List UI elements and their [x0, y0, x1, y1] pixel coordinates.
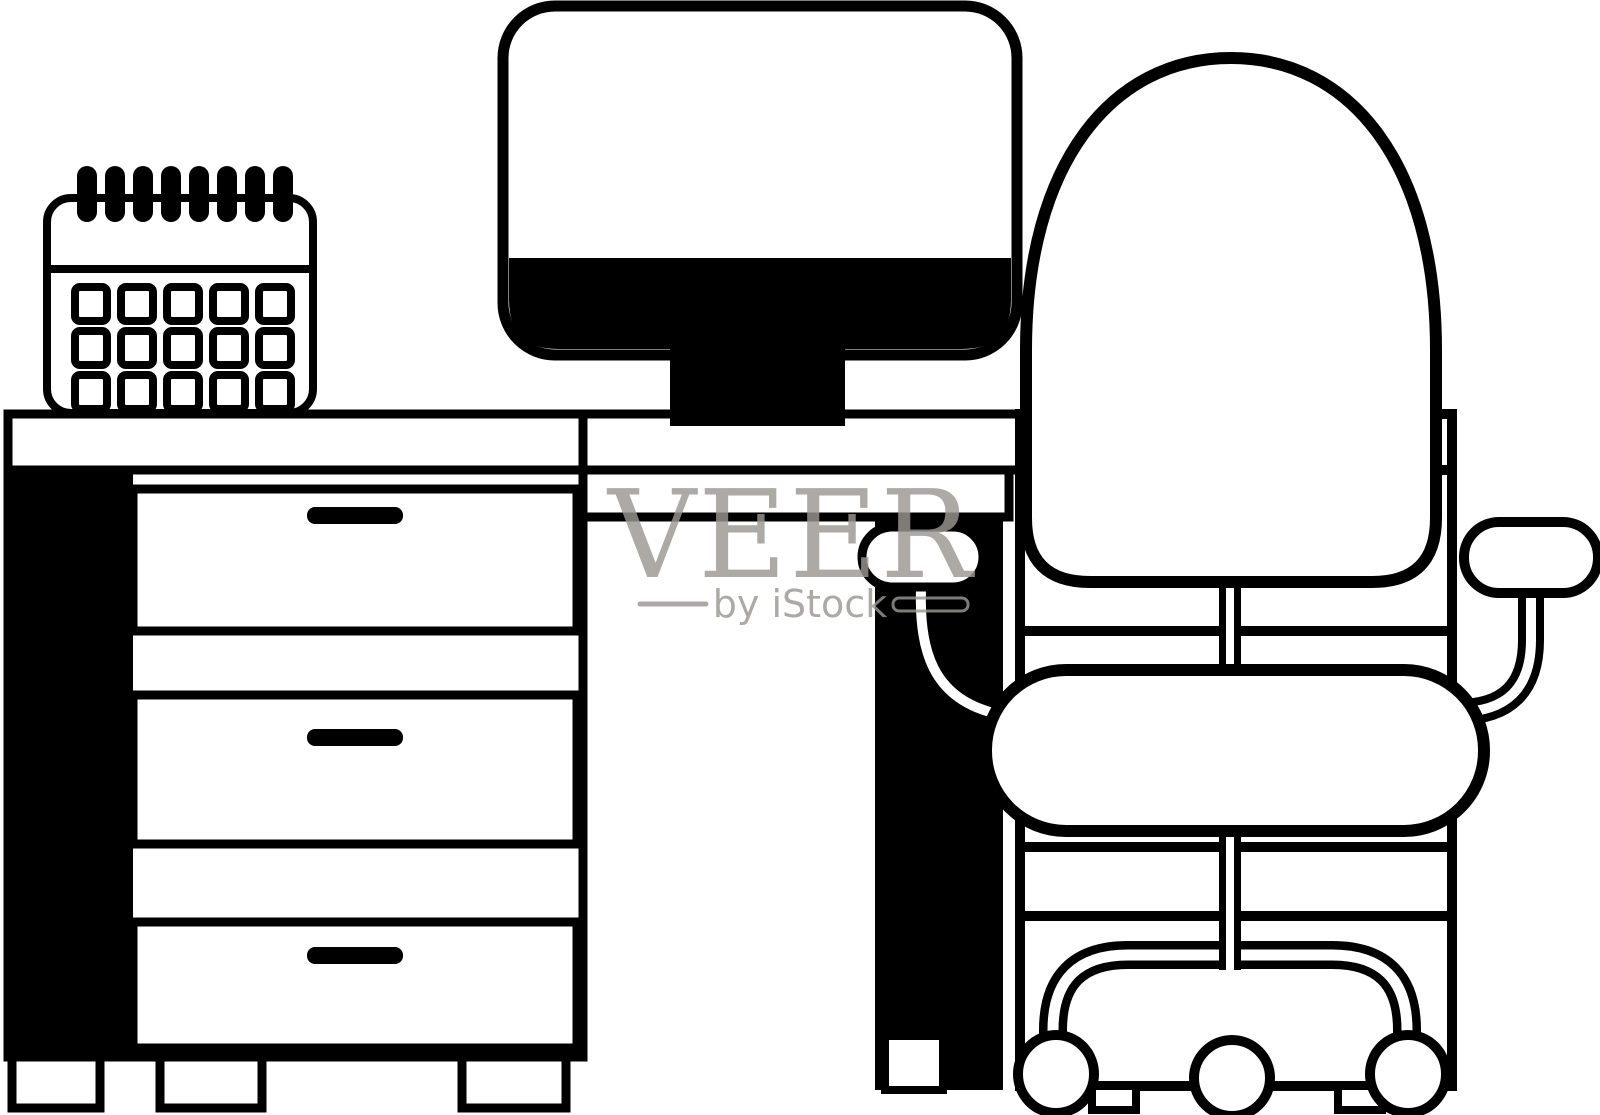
stock-illustration-canvas: VEER by iStock: [0, 0, 1600, 1115]
watermark: VEER by iStock: [606, 464, 975, 626]
desk-foot: [885, 1036, 943, 1090]
monitor-stand: [670, 349, 845, 426]
caster-wheel: [1018, 1035, 1094, 1113]
right-armrest-pad: [1464, 522, 1598, 593]
caster-wheel: [1194, 1040, 1270, 1115]
chair-seat: [986, 670, 1484, 831]
computer-monitor-icon: [503, 6, 1017, 426]
desk-left-pedestal: [8, 414, 583, 1108]
desk-foot: [462, 1057, 566, 1108]
calendar-icon: [47, 166, 313, 413]
desk-foot: [1092, 1086, 1136, 1110]
desk-top-left: [8, 414, 583, 470]
monitor-bezel-band: [509, 258, 1011, 349]
chair-backrest: [1026, 58, 1436, 582]
left-side-panel: [8, 470, 133, 1057]
drawer-2: [133, 695, 577, 844]
desk-foot: [12, 1057, 100, 1108]
workspace-illustration: VEER by iStock: [0, 0, 1600, 1115]
desk-foot: [160, 1057, 262, 1108]
drawer-3: [133, 922, 577, 1048]
drawer-3-handle: [307, 947, 403, 964]
drawer-2-handle: [307, 729, 403, 746]
drawer-1-handle: [307, 507, 403, 524]
calendar-day-grid: [75, 287, 291, 409]
caster-wheel: [1370, 1035, 1446, 1113]
watermark-byline-text: by iStock: [713, 582, 887, 626]
